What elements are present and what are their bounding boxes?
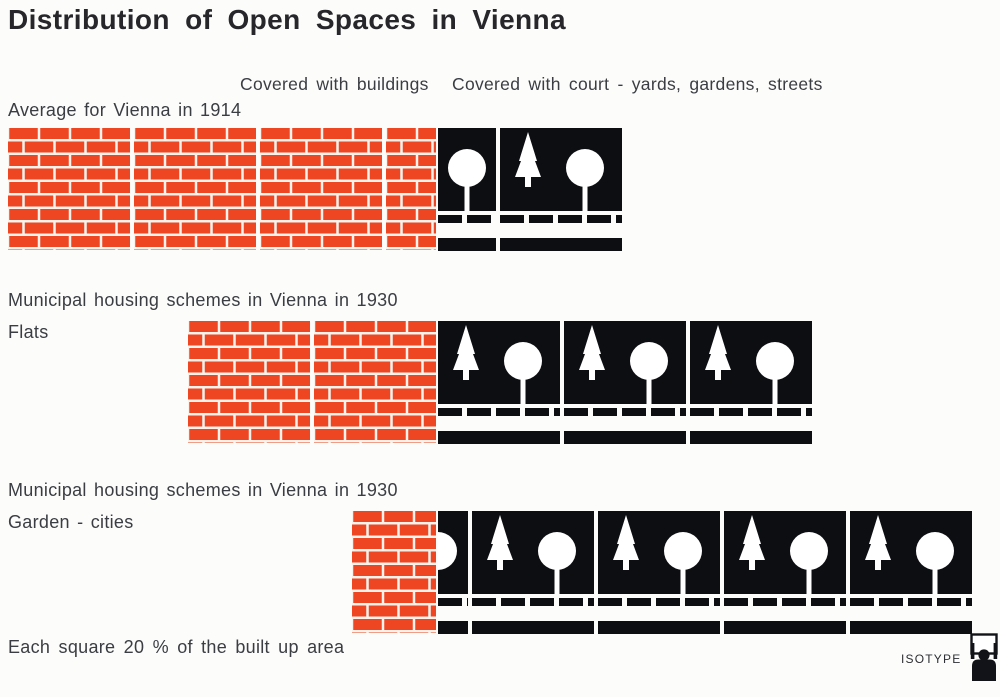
- street-dashes: [472, 598, 594, 606]
- open-space-zone: [438, 128, 622, 251]
- open-space-zone: [438, 321, 812, 444]
- row-strip-flats: [0, 321, 1000, 445]
- round-tree-icon: [756, 342, 794, 380]
- isotype-chart-page: Distribution of Open Spaces in Vienna Co…: [0, 0, 1000, 697]
- street-bar: [724, 621, 846, 634]
- open-space-square: [690, 321, 812, 444]
- round-tree-trunk: [933, 567, 938, 594]
- brick-square: [188, 321, 310, 443]
- open-space-square: [598, 511, 720, 634]
- built-area-zone: [352, 511, 436, 633]
- open-space-square: [724, 511, 846, 634]
- round-tree-trunk: [465, 184, 470, 211]
- street-bar: [472, 621, 594, 634]
- round-tree-icon: [448, 149, 486, 187]
- street-dashes: [438, 215, 496, 223]
- unit-note: Each square 20 % of the built up area: [8, 637, 344, 658]
- brick-square: [352, 511, 436, 633]
- round-tree-trunk: [583, 184, 588, 211]
- street-dashes: [438, 408, 560, 416]
- row-label-municipal-1930-flats: Municipal housing schemes in Vienna in 1…: [8, 290, 398, 311]
- brick-square: [386, 128, 436, 250]
- round-tree-icon: [538, 532, 576, 570]
- isotype-logo-text: ISOTYPE: [901, 652, 961, 666]
- round-tree-icon: [566, 149, 604, 187]
- open-space-square: [438, 321, 560, 444]
- street-dashes: [500, 215, 622, 223]
- brick-square: [314, 321, 436, 443]
- round-tree-trunk: [521, 377, 526, 404]
- street-bar: [690, 431, 812, 444]
- open-space-square: [438, 511, 468, 634]
- row-strip-average-1914: [0, 128, 1000, 252]
- round-tree-icon: [916, 532, 954, 570]
- round-tree-icon: [664, 532, 702, 570]
- brick-square: [8, 128, 130, 250]
- row-label-average-1914: Average for Vienna in 1914: [8, 100, 241, 121]
- street-bar: [500, 238, 622, 251]
- built-area-zone: [8, 128, 436, 250]
- row-label-municipal-1930-garden-cities: Municipal housing schemes in Vienna in 1…: [8, 480, 398, 501]
- round-tree-trunk: [555, 567, 560, 594]
- isotype-logo: ISOTYPE: [901, 633, 1000, 681]
- street-dashes: [724, 598, 846, 606]
- street-dashes: [598, 598, 720, 606]
- open-space-square: [564, 321, 686, 444]
- brick-square: [260, 128, 382, 250]
- open-space-square: [850, 511, 972, 634]
- round-tree-icon: [630, 342, 668, 380]
- built-area-zone: [188, 321, 436, 443]
- isotype-man-icon: [964, 633, 1000, 681]
- round-tree-trunk: [773, 377, 778, 404]
- legend-covered-with-courtyards: Covered with court - yards, gardens, str…: [452, 74, 823, 95]
- brick-square: [134, 128, 256, 250]
- round-tree-trunk: [681, 567, 686, 594]
- open-space-zone: [438, 511, 972, 634]
- open-space-square: [500, 128, 622, 251]
- street-dashes: [690, 408, 812, 416]
- round-tree-icon: [504, 342, 542, 380]
- round-tree-icon: [790, 532, 828, 570]
- round-tree-trunk: [647, 377, 652, 404]
- street-bar: [438, 621, 468, 634]
- street-dashes: [564, 408, 686, 416]
- page-title: Distribution of Open Spaces in Vienna: [8, 4, 566, 36]
- open-space-square: [438, 128, 496, 251]
- street-dashes: [438, 598, 468, 606]
- legend-covered-with-buildings: Covered with buildings: [240, 74, 429, 95]
- row-strip-garden-cities: [0, 511, 1000, 635]
- street-bar: [438, 238, 496, 251]
- street-bar: [438, 431, 560, 444]
- street-dashes: [850, 598, 972, 606]
- round-tree-trunk: [807, 567, 812, 594]
- street-bar: [564, 431, 686, 444]
- street-bar: [598, 621, 720, 634]
- open-space-square: [472, 511, 594, 634]
